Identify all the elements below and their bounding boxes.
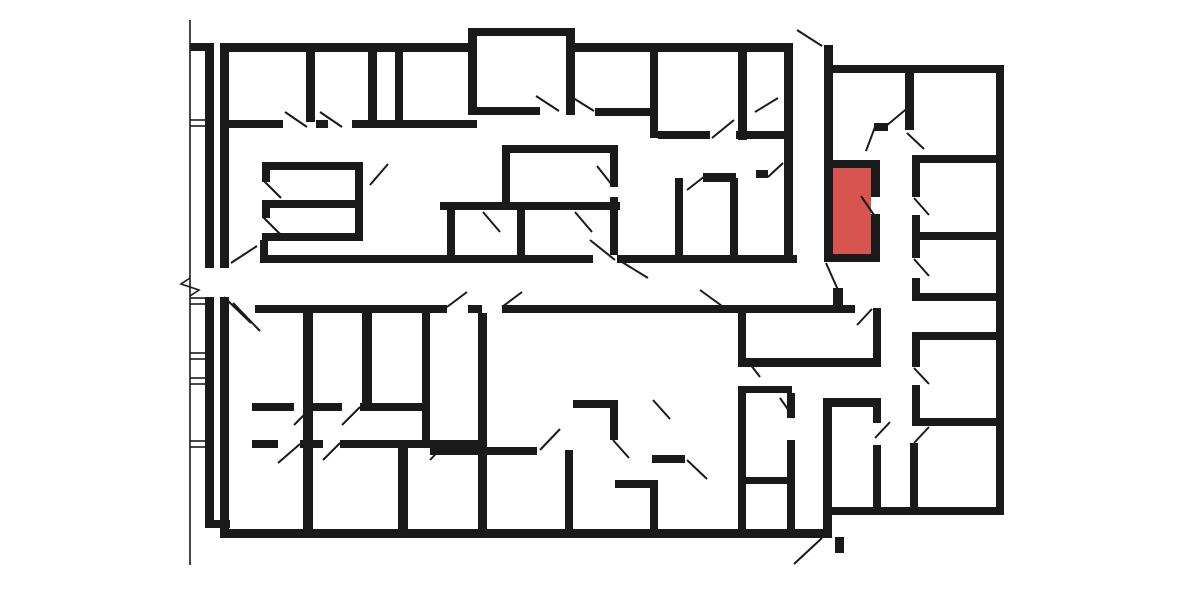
wall-segment (650, 52, 658, 138)
wall-segment (873, 308, 881, 365)
wall-segment (912, 232, 996, 240)
wall-segment (824, 160, 833, 262)
wall-segment (255, 305, 447, 313)
wall-segment (912, 332, 996, 340)
wall-segment (615, 480, 658, 488)
wall-segment (650, 488, 658, 529)
wall-segment (303, 313, 313, 529)
wall-segment (468, 305, 482, 313)
wall-segment (355, 162, 363, 241)
wall-segment (784, 43, 793, 262)
wall-segment (220, 529, 832, 538)
wall-segment (745, 358, 881, 367)
wall-segment (422, 313, 430, 447)
wall-segment (316, 120, 328, 128)
wall-segment (825, 65, 1004, 73)
wall-segment (468, 28, 575, 36)
wall-segment (252, 440, 278, 448)
plan-background (0, 0, 1184, 592)
wall-segment (748, 131, 784, 139)
floorplan-svg (0, 0, 1184, 592)
wall-segment (835, 537, 844, 553)
wall-segment (912, 215, 920, 240)
wall-segment (833, 288, 843, 306)
wall-segment (658, 131, 710, 139)
wall-segment (832, 305, 855, 313)
wall-segment (224, 120, 283, 128)
wall-segment (824, 507, 1004, 515)
wall-segment (610, 400, 618, 440)
wall-segment (652, 455, 685, 463)
wall-segment (912, 418, 996, 426)
wall-segment (220, 43, 229, 268)
wall-segment (738, 386, 746, 529)
wall-segment (912, 240, 920, 258)
wall-segment (738, 52, 747, 140)
wall-segment (306, 52, 315, 122)
wall-segment (300, 440, 323, 448)
wall-segment (368, 52, 377, 122)
wall-segment (260, 255, 593, 263)
wall-segment (262, 200, 362, 208)
wall-segment (205, 297, 214, 528)
wall-segment (398, 448, 408, 529)
wall-segment (565, 450, 573, 529)
wall-segment (912, 293, 996, 301)
wall-segment (362, 313, 372, 410)
wall-segment (468, 28, 477, 115)
wall-segment (871, 214, 880, 254)
wall-segment (736, 131, 748, 139)
wall-segment (340, 440, 478, 448)
wall-segment (262, 233, 362, 241)
wall-segment (912, 385, 920, 426)
selected-unit-highlight[interactable] (832, 168, 871, 254)
wall-segment (610, 145, 618, 187)
wall-segment (823, 398, 832, 537)
wall-segment (610, 197, 618, 210)
wall-segment (205, 45, 214, 268)
wall-segment (352, 120, 477, 128)
wall-segment (912, 155, 996, 163)
wall-segment (703, 173, 736, 182)
wall-segment (912, 155, 920, 197)
wall-segment (824, 160, 880, 168)
wall-segment (745, 386, 792, 393)
wall-segment (566, 28, 575, 115)
wall-segment (824, 254, 880, 262)
wall-segment (910, 443, 918, 507)
wall-segment (360, 403, 427, 411)
wall-segment (730, 178, 738, 255)
wall-segment (447, 210, 455, 255)
wall-segment (871, 168, 880, 197)
wall-segment (740, 477, 795, 484)
wall-segment (874, 123, 888, 131)
wall-segment (502, 145, 510, 210)
wall-segment (517, 210, 525, 255)
wall-segment (252, 403, 294, 411)
wall-segment (575, 43, 793, 52)
wall-segment (478, 313, 487, 529)
wall-segment (312, 403, 342, 411)
wall-segment (395, 52, 403, 122)
wall-segment (617, 255, 797, 263)
wall-segment (262, 208, 270, 218)
wall-segment (502, 305, 832, 313)
wall-segment (262, 162, 362, 170)
wall-segment (440, 202, 620, 210)
wall-segment (912, 278, 920, 301)
wall-segment (873, 398, 881, 423)
wall-segment (873, 445, 881, 507)
wall-segment (502, 145, 617, 153)
wall-segment (738, 313, 746, 367)
wall-segment (756, 170, 768, 178)
wall-segment (905, 73, 914, 130)
wall-segment (996, 65, 1004, 515)
wall-segment (824, 45, 833, 162)
wall-segment (220, 297, 229, 538)
wall-segment (595, 108, 658, 116)
wall-segment (787, 440, 795, 529)
wall-segment (675, 178, 683, 255)
wall-segment (220, 43, 472, 52)
wall-segment (477, 107, 540, 115)
wall-segment (430, 447, 537, 455)
wall-segment (912, 340, 920, 367)
wall-segment (610, 210, 618, 255)
floorplan-viewport (0, 0, 1184, 592)
